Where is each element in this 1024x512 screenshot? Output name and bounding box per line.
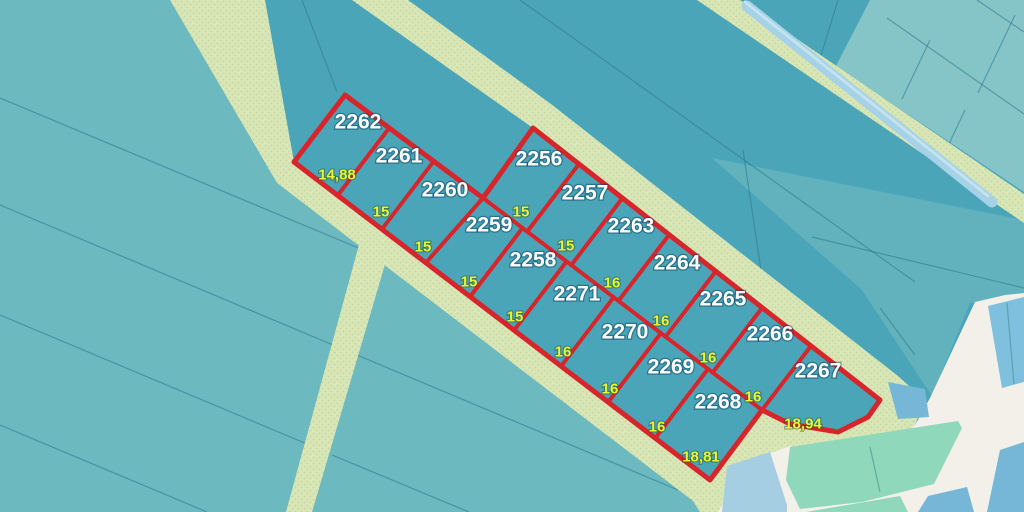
parcel-number-2263: 2263 xyxy=(608,215,655,238)
parcel-width-2271: 16 xyxy=(555,344,572,361)
parcel-number-2269: 2269 xyxy=(648,356,695,379)
parcel-width-2265: 16 xyxy=(700,350,717,367)
parcel-number-2258: 2258 xyxy=(510,249,557,272)
parcel-number-2267: 2267 xyxy=(795,360,842,383)
parcel-width-2260: 15 xyxy=(415,239,432,256)
parcel-width-2263: 16 xyxy=(604,275,621,292)
parcel-width-2268: 18,81 xyxy=(682,449,720,466)
parcel-width-2259: 15 xyxy=(461,274,478,291)
parcel-width-2258: 15 xyxy=(507,309,524,326)
parcel-number-2271: 2271 xyxy=(554,283,601,306)
parcel-width-2257: 15 xyxy=(558,238,575,255)
parcel-width-2270: 16 xyxy=(602,381,619,398)
parcel-number-2266: 2266 xyxy=(747,323,794,346)
parcel-width-2262: 14,88 xyxy=(318,167,356,184)
parcel-number-2264: 2264 xyxy=(654,252,701,275)
parcel-width-2264: 16 xyxy=(653,313,670,330)
parcel-width-2266: 16 xyxy=(745,389,762,406)
parcel-number-2260: 2260 xyxy=(422,179,469,202)
parcel-number-2265: 2265 xyxy=(700,288,747,311)
parcel-width-2267: 18,94 xyxy=(784,416,822,433)
map-viewport: 226214,882261152260152259152258152271162… xyxy=(0,0,1024,512)
parcel-number-2261: 2261 xyxy=(376,145,423,168)
parcel-number-2257: 2257 xyxy=(562,182,609,205)
parcel-width-2256: 15 xyxy=(513,204,530,221)
parcel-width-2261: 15 xyxy=(373,204,390,221)
parcel-number-2262: 2262 xyxy=(335,111,382,134)
parcel-number-2270: 2270 xyxy=(602,321,649,344)
cadastral-map[interactable]: 226214,882261152260152259152258152271162… xyxy=(0,0,1024,512)
parcel-number-2256: 2256 xyxy=(516,148,563,171)
parcel-number-2268: 2268 xyxy=(695,391,742,414)
parcel-width-2269: 16 xyxy=(649,419,666,436)
parcel-number-2259: 2259 xyxy=(466,214,513,237)
